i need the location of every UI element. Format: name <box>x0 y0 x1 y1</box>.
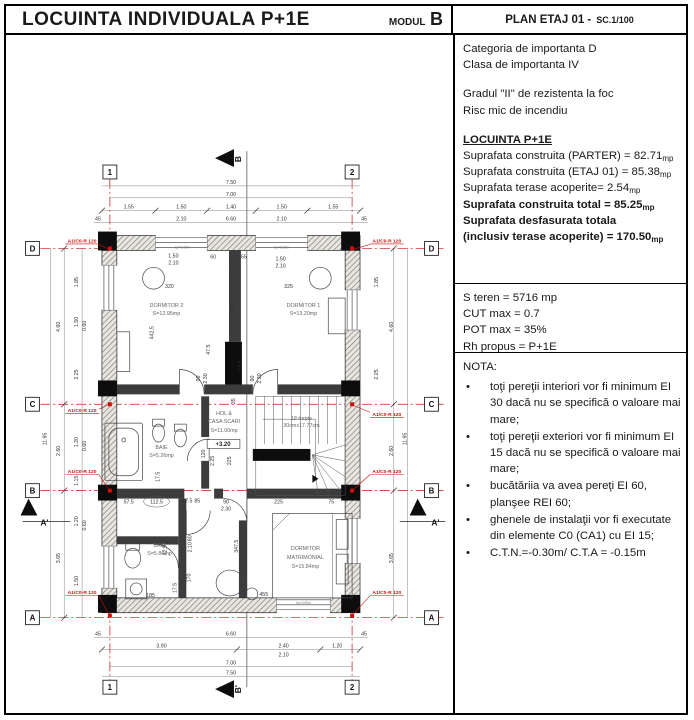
dimension-label: 1.20 <box>74 437 80 447</box>
section-arrow-b-top <box>215 149 234 167</box>
grid-bubble-label: D <box>30 244 36 253</box>
room-label: S=12.95mp <box>153 311 181 317</box>
dimension-label: 0.60 <box>82 441 88 451</box>
dimension-label: 300 <box>230 304 236 313</box>
dimension-label: 7.50 <box>226 670 236 676</box>
urbanism-section: S teren = 5716 mp CUT max = 0.7 POT max … <box>455 283 686 352</box>
room-label: DORMITOR 2 <box>150 303 184 309</box>
dimension-label: 17.5 <box>238 360 244 370</box>
desk-dormitor-1 <box>328 298 345 334</box>
room-label: DORMITOR 1 <box>287 303 321 309</box>
dimension-label: 11.65 <box>42 433 48 446</box>
plan-scale: SC.1/100 <box>596 15 634 25</box>
dimension-label: 45 <box>361 217 367 223</box>
pot-max: POT max = 35% <box>463 322 682 338</box>
dimension-label: 325 <box>284 284 293 290</box>
dimension-label: 1.20 <box>74 516 80 526</box>
title-cell: LOCUINTA INDIVIDUALA P+1E MODUL B <box>6 6 453 33</box>
room-label: S=5.86mp <box>147 551 172 557</box>
stairs <box>253 396 345 495</box>
title-block: LOCUINTA INDIVIDUALA P+1E MODUL B PLAN E… <box>6 6 686 35</box>
dimension-label: 45 <box>95 217 101 223</box>
window-left-top <box>102 265 117 310</box>
drawing-sheet: LOCUINTA INDIVIDUALA P+1E MODUL B PLAN E… <box>4 4 688 715</box>
dimension-label: 2.10 <box>168 260 178 266</box>
window-right-top <box>345 290 360 330</box>
dimension-label: 2.30 <box>221 506 231 512</box>
dimension-label: B <box>233 156 243 162</box>
dimension-label: 6.60 <box>226 632 236 638</box>
dimension-label: 0.60 <box>82 321 88 331</box>
dimension-label: 2.10 <box>276 263 286 269</box>
module-letter: B <box>430 9 443 29</box>
grid-bubble-label: B <box>30 487 36 496</box>
areas-title: LOCUINTA P+1E <box>463 132 682 148</box>
grid-bubble-label: A <box>30 614 36 623</box>
room-label: 30cmx17.77cm <box>283 423 320 429</box>
dimension-label: 35 <box>231 398 237 404</box>
stair-rail <box>253 449 311 461</box>
room-label: S=15.84mp <box>292 564 320 570</box>
dimension-label: 2.25 <box>74 369 80 379</box>
dimension-label: +3.20 <box>216 442 232 448</box>
grid-bubble-label: D <box>429 244 435 253</box>
importance-class: Clasa de importanta IV <box>463 57 682 73</box>
dimension-label: 11.65 <box>403 433 409 446</box>
area-etaj: Suprafata construita (ETAJ 01) = 85.38mp <box>463 164 682 180</box>
dimension-label: 1.55 <box>124 205 134 211</box>
window-left-bottom <box>102 546 117 588</box>
dimension-label: 45 <box>361 632 367 638</box>
area-total: Suprafata construita total = 85.25mp <box>463 197 682 213</box>
dimension-label: 1.50 <box>74 576 80 586</box>
dimension-label: hp=0.90m <box>274 245 289 249</box>
dimension-label: 57.5 <box>124 500 134 506</box>
dimension-label: 347.5 <box>234 540 240 553</box>
lamp-dormitor-1 <box>309 267 331 289</box>
dimension-label: A' <box>40 517 48 527</box>
area-parter: Suprafata construita (PARTER) = 82.71mp <box>463 148 682 164</box>
dimension-label: 3.90 <box>156 643 166 649</box>
grid-bubble-label: 2 <box>350 168 355 177</box>
floor-plan-area: 1212DCBADCBA7.507.001.551.501.401.501.55… <box>6 35 453 713</box>
nota-item: •toţi pereţii interiori vor fi minimum E… <box>463 379 682 428</box>
dimension-label: 17.5 <box>172 583 178 593</box>
area-terase: Suprafata terase acoperite= 2.54mp <box>463 180 682 196</box>
dimension-label: 17.5 <box>182 499 192 505</box>
dimension-label: 90 <box>196 375 202 381</box>
dimension-label: 1.85 <box>74 277 80 287</box>
grid-bubble-label: C <box>30 400 36 409</box>
plan-name: PLAN ETAJ 01 - <box>505 14 591 26</box>
dimension-label: 2.10 <box>176 217 186 223</box>
fire-resistance: Gradul "II" de rezistenta la foc <box>463 86 682 102</box>
nota-item: •toţi pereţii exteriori vor fi minimum E… <box>463 429 682 478</box>
nota-item: •ghenele de instalaţii vor fi executate … <box>463 512 682 544</box>
room-label: BAIE <box>155 445 168 451</box>
fire-rating-label: A1/C0-R 120 <box>68 408 97 414</box>
nota-item: •bucătăriia va avea pereţi EI 60, planşe… <box>463 478 682 510</box>
dimension-label: hp=0.90m <box>296 601 311 605</box>
grid-bubble-label: 1 <box>108 683 113 692</box>
dimension-label: 2.60 <box>389 446 395 456</box>
dimension-label: 0.60 <box>82 520 88 530</box>
toilet-2 <box>125 543 141 568</box>
fire-rating-label: A1/C0-R 120 <box>372 412 401 418</box>
window-right-bottom <box>345 518 360 563</box>
lamp-dormitor-2 <box>143 267 165 289</box>
plan-name-cell: PLAN ETAJ 01 - SC.1/100 <box>453 6 686 33</box>
dimension-label: 6.60 <box>226 217 236 223</box>
dimension-label: 455 <box>259 592 268 598</box>
grid-bubble-label: 2 <box>350 683 355 692</box>
dimension-label: 1.85 <box>374 277 380 287</box>
room-label: 18 trepte <box>291 416 312 422</box>
dimension-label: 2.30 <box>203 373 209 383</box>
wardrobe-dormitor-2 <box>117 332 130 372</box>
cut-max: CUT max = 0.7 <box>463 306 682 322</box>
info-panel: Categoria de importanta D Clasa de impor… <box>453 35 686 713</box>
dimension-label: 2.10 <box>187 542 193 552</box>
section-arrow-a-right <box>410 499 427 516</box>
dimension-label: 112.5 <box>150 500 163 506</box>
dimension-label: 7.50 <box>226 180 236 186</box>
dimension-label: 3.65 <box>56 553 62 563</box>
dimension-label: 2.10 <box>278 652 288 658</box>
dimension-label: 1.55 <box>328 205 338 211</box>
area-desfasurata: Suprafata desfasurata totala <box>463 213 682 229</box>
dimension-label: 2.60 <box>56 446 62 456</box>
module-word: MODUL <box>389 17 426 28</box>
dimension-label: 7.00 <box>226 192 236 198</box>
dimension-label: 1.20 <box>332 643 342 649</box>
dimension-label: 15 <box>230 269 236 275</box>
room-label: CASA SCARI <box>208 419 240 425</box>
room-label: MATRIMONIAL <box>287 555 324 561</box>
dimension-label: 75 <box>328 500 334 506</box>
dimension-label: 1.50 <box>168 253 178 259</box>
dimension-label: 4.60 <box>56 322 62 332</box>
s-teren: S teren = 5716 mp <box>463 290 682 306</box>
dimension-label: B' <box>233 685 243 693</box>
dimension-label: 1.50 <box>74 317 80 327</box>
dimension-label: 320 <box>165 284 174 290</box>
room-label: S=13.20mp <box>290 311 318 317</box>
floor-plan-drawing: 1212DCBADCBA7.507.001.551.501.401.501.55… <box>6 35 453 713</box>
module-label: MODUL B <box>389 9 443 30</box>
dimension-label: 1.50 <box>176 205 186 211</box>
room-label: S=5.26mp <box>149 453 174 459</box>
dimension-label: A' <box>431 517 439 527</box>
dimension-label: 3.65 <box>389 553 395 563</box>
drawing-title: LOCUINTA INDIVIDUALA P+1E <box>22 9 310 31</box>
grid-bubble-label: B <box>429 487 435 496</box>
grid-bubble-label: 1 <box>108 168 113 177</box>
importance-category: Categoria de importanta D <box>463 41 682 57</box>
dimension-label: 442.5 <box>150 326 156 339</box>
dimension-label: 80 <box>187 535 193 541</box>
dimension-label: 1.50 <box>277 205 287 211</box>
dimension-label: 2.25 <box>210 456 216 466</box>
section-arrow-b-bottom <box>215 680 234 698</box>
general-info-section: Categoria de importanta D Clasa de impor… <box>455 35 686 283</box>
room-label: S=11.00mp <box>210 428 237 434</box>
section-arrow-a-left <box>21 499 38 516</box>
fire-risk: Risc mic de incendiu <box>463 103 682 119</box>
nota-section: NOTA: •toţi pereţii interiori vor fi min… <box>455 352 686 710</box>
fire-rating-label: A1/C0-R 120 <box>372 469 401 475</box>
dimension-label: 185 <box>146 593 155 599</box>
dimension-label: 225 <box>274 500 283 506</box>
nota-item: •C.T.N.=-0.30m/ C.T.A = -0.15m <box>463 545 682 561</box>
dimension-label: hp=0.90m <box>175 245 190 249</box>
dimension-label: 120 <box>201 449 207 458</box>
dimension-label: 1.50 <box>276 256 286 262</box>
toilet <box>153 419 165 442</box>
dimension-label: 225 <box>227 456 233 465</box>
dimension-label: 170 <box>186 574 192 583</box>
fire-rating-label: A1/C0-R 120 <box>372 590 401 596</box>
dimension-label: 45 <box>95 632 101 638</box>
fire-rating-label: A1/C0-R 120 <box>68 238 97 244</box>
grid-bubble-label: C <box>429 400 435 409</box>
dimension-label: 90 <box>250 375 256 381</box>
dimension-label: 47.5 <box>206 344 212 354</box>
door-closet <box>186 510 210 534</box>
dimension-label: 90 <box>223 500 229 506</box>
dimension-label: 4.60 <box>389 322 395 332</box>
dimension-label: 2.40 <box>278 643 288 649</box>
dimension-label: 65 <box>241 254 247 260</box>
dimension-label: 2.25 <box>374 369 380 379</box>
room-label: HOL & <box>216 411 232 417</box>
room-label: BAIE <box>153 543 166 549</box>
dimension-label: 2.30 <box>257 373 263 383</box>
washing-machine <box>126 579 147 599</box>
dimension-label: 1.15 <box>74 476 80 486</box>
grid-bubble-label: A <box>429 614 435 623</box>
fire-rating-label: A1/C0-R 120 <box>68 590 97 596</box>
dimension-label: 85 <box>194 499 200 505</box>
dimension-label: 60 <box>210 254 216 260</box>
sink <box>174 424 186 447</box>
dimension-label: 17.5 <box>156 472 162 482</box>
fire-rating-label: A1/C0-R 120 <box>68 469 97 475</box>
room-label: DORMITOR <box>291 546 320 552</box>
dimension-label: 1.40 <box>226 205 236 211</box>
dimension-label: 2.10 <box>277 217 287 223</box>
nota-title: NOTA: <box>463 359 682 375</box>
area-desfasurata-total: (inclusiv terase acoperite) = 170.50mp <box>463 229 682 245</box>
fire-rating-label: A1/C0-R 120 <box>372 238 401 244</box>
dimension-label: 7.00 <box>226 660 236 666</box>
